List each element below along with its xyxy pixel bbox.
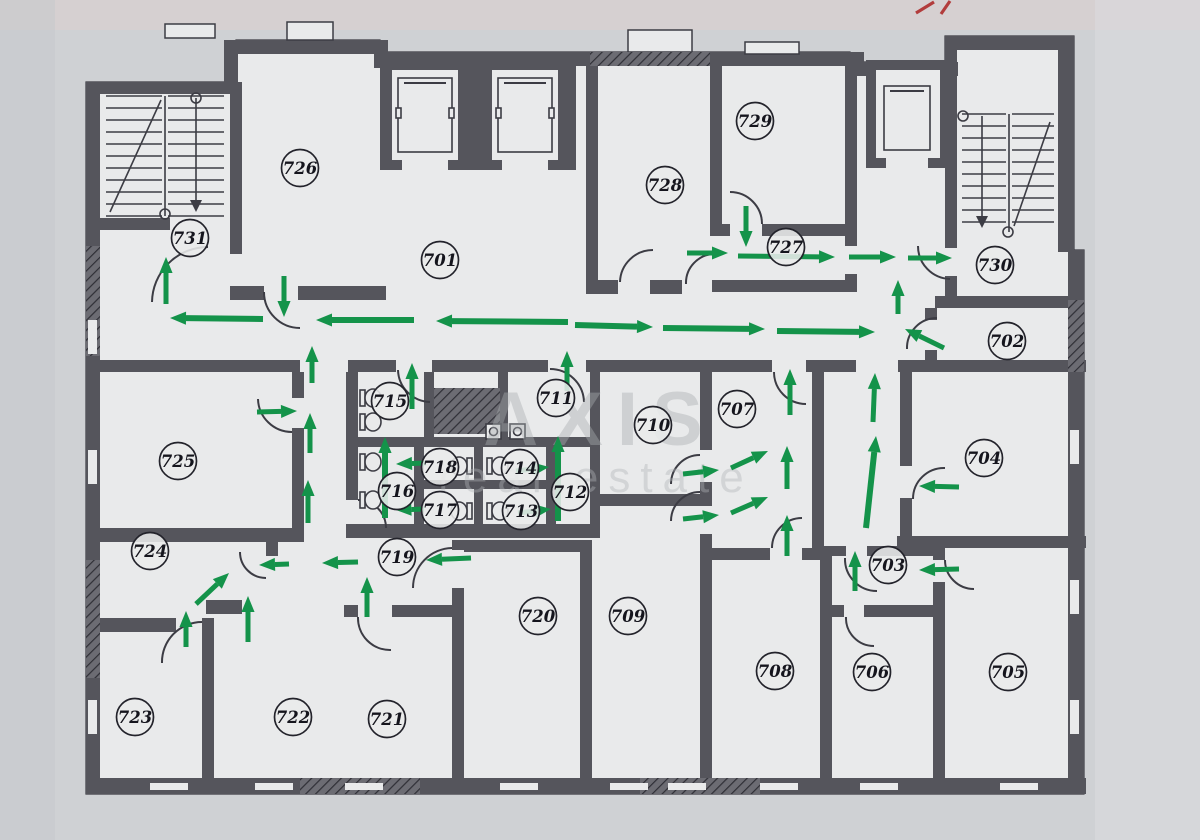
room-label-718: 718 [422, 449, 459, 486]
wall-segment [424, 372, 434, 438]
wall-segment [710, 224, 730, 236]
window-bay [287, 22, 333, 40]
wall-segment [346, 372, 358, 500]
elevator-car-1 [396, 78, 454, 152]
svg-text:720: 720 [521, 607, 556, 626]
svg-text:705: 705 [991, 663, 1025, 682]
wall-segment [392, 605, 454, 617]
wall-segment [898, 360, 1086, 372]
svg-text:724: 724 [133, 542, 167, 561]
svg-text:708: 708 [758, 662, 793, 681]
wall-segment [298, 286, 386, 300]
wall-segment [945, 36, 1071, 50]
hatched-wall [1068, 300, 1084, 372]
wall-segment [586, 66, 598, 292]
hatched-wall [590, 52, 710, 66]
wall-segment [700, 534, 712, 792]
room-label-716: 716 [379, 473, 416, 510]
watermark-line2: real estate [438, 453, 753, 502]
wall-segment [348, 360, 396, 372]
svg-text:718: 718 [423, 458, 458, 477]
svg-text:702: 702 [990, 332, 1024, 351]
floor-plan-svg: AXIS real estate 70170270370470570670770… [0, 0, 1200, 840]
room-label-706: 706 [854, 654, 891, 691]
scanned-floor-plan: AXIS real estate 70170270370470570670770… [0, 0, 1200, 840]
room-label-727: 727 [768, 229, 805, 266]
svg-text:721: 721 [370, 710, 404, 729]
wall-segment [845, 66, 857, 224]
wall-segment [452, 588, 464, 792]
wall-segment [86, 360, 300, 372]
elevator-block [380, 58, 576, 172]
wall-segment [580, 540, 592, 792]
wall-segment [86, 218, 170, 230]
svg-text:707: 707 [720, 400, 755, 419]
room-label-715: 715 [372, 383, 409, 420]
svg-text:701: 701 [423, 251, 457, 270]
wall-segment [586, 360, 772, 372]
wall-segment [650, 280, 682, 294]
wall-segment [820, 548, 832, 792]
svg-text:704: 704 [967, 449, 1001, 468]
wall-segment [432, 360, 548, 372]
window-opening [610, 783, 648, 790]
wall-segment [845, 274, 857, 292]
wall-segment [900, 372, 912, 466]
room-label-708: 708 [757, 653, 794, 690]
wall-segment [933, 605, 945, 792]
wall-segment [712, 548, 770, 560]
svg-text:722: 722 [276, 708, 310, 727]
window-opening [1000, 783, 1038, 790]
room-label-717: 717 [422, 492, 459, 529]
window-opening [760, 783, 798, 790]
room-label-723: 723 [117, 699, 154, 736]
room-label-726: 726 [282, 150, 319, 187]
room-label-703: 703 [870, 547, 907, 584]
wall-segment [292, 372, 304, 398]
room-label-710: 710 [635, 407, 672, 444]
hatched-wall [86, 560, 100, 678]
window-opening [668, 783, 706, 790]
room-label-712: 712 [552, 474, 589, 511]
wall-segment [933, 582, 945, 605]
wall-segment [86, 82, 238, 94]
window-opening [1070, 430, 1079, 464]
room-label-705: 705 [990, 654, 1027, 691]
room-label-720: 720 [520, 598, 557, 635]
wall-segment [230, 82, 242, 254]
window-opening [88, 700, 97, 734]
room-label-702: 702 [989, 323, 1026, 360]
svg-text:730: 730 [978, 256, 1013, 275]
room-label-711: 711 [538, 380, 575, 417]
svg-text:703: 703 [871, 556, 905, 575]
wall-segment [586, 280, 618, 294]
room-label-719: 719 [379, 539, 416, 576]
svg-text:726: 726 [283, 159, 318, 178]
svg-text:710: 710 [636, 416, 671, 435]
wall-segment [346, 524, 600, 538]
wall-segment [344, 605, 358, 617]
window-opening [345, 783, 383, 790]
room-label-722: 722 [275, 699, 312, 736]
room-label-730: 730 [977, 247, 1014, 284]
window-opening [150, 783, 188, 790]
wall-segment [86, 82, 100, 792]
svg-text:717: 717 [423, 501, 458, 520]
svg-text:727: 727 [769, 238, 804, 257]
watermark: AXIS real estate [438, 377, 753, 502]
wall-segment [292, 428, 304, 528]
window-opening [860, 783, 898, 790]
room-label-721: 721 [369, 701, 406, 738]
svg-text:723: 723 [118, 708, 152, 727]
wall-segment [202, 618, 214, 778]
window-bay [165, 24, 215, 38]
room-label-729: 729 [737, 103, 774, 140]
svg-text:713: 713 [504, 502, 538, 521]
window-opening [1070, 700, 1079, 734]
wall-segment [824, 546, 846, 556]
svg-text:716: 716 [380, 482, 415, 501]
wall-segment [230, 40, 386, 54]
svg-text:731: 731 [173, 229, 207, 248]
room-label-724: 724 [132, 533, 169, 570]
room-label-713: 713 [503, 493, 540, 530]
wall-segment [1058, 36, 1074, 252]
room-label-714: 714 [502, 450, 539, 487]
svg-text:706: 706 [855, 663, 890, 682]
window-opening [500, 783, 538, 790]
room-label-725: 725 [160, 443, 197, 480]
elevator-car-2 [496, 78, 554, 152]
svg-text:712: 712 [553, 483, 587, 502]
wall-segment [710, 66, 722, 236]
wall-segment [464, 540, 592, 552]
wall-segment [266, 530, 278, 556]
svg-text:729: 729 [738, 112, 773, 131]
wall-segment [452, 540, 464, 550]
svg-text:711: 711 [539, 389, 573, 408]
wall-segment [824, 605, 844, 617]
svg-text:715: 715 [373, 392, 407, 411]
wall-segment [933, 546, 945, 560]
room-label-709: 709 [610, 598, 647, 635]
wall-segment [806, 360, 856, 372]
svg-text:728: 728 [648, 176, 683, 195]
wall-segment [935, 296, 1070, 308]
window-opening [1070, 580, 1079, 614]
wall-segment [812, 372, 824, 548]
wall-segment [864, 605, 940, 617]
wall-segment [845, 224, 857, 246]
room-label-728: 728 [647, 167, 684, 204]
window-bay [628, 30, 692, 52]
wall-segment [230, 286, 264, 300]
scan-left-tint [0, 0, 55, 840]
window-opening [255, 783, 293, 790]
room-label-704: 704 [966, 440, 1003, 477]
svg-text:719: 719 [380, 548, 415, 567]
scan-right-tint [1095, 0, 1200, 840]
svg-text:714: 714 [503, 459, 537, 478]
svg-text:725: 725 [161, 452, 195, 471]
wall-segment [206, 600, 242, 614]
window-opening [88, 320, 97, 354]
window-bay [745, 42, 799, 54]
svg-text:709: 709 [611, 607, 646, 626]
window-opening [88, 450, 97, 484]
room-label-707: 707 [719, 391, 756, 428]
wall-segment [712, 280, 856, 292]
room-label-701: 701 [422, 242, 459, 279]
elevator-3 [866, 60, 950, 170]
room-label-731: 731 [172, 220, 209, 257]
